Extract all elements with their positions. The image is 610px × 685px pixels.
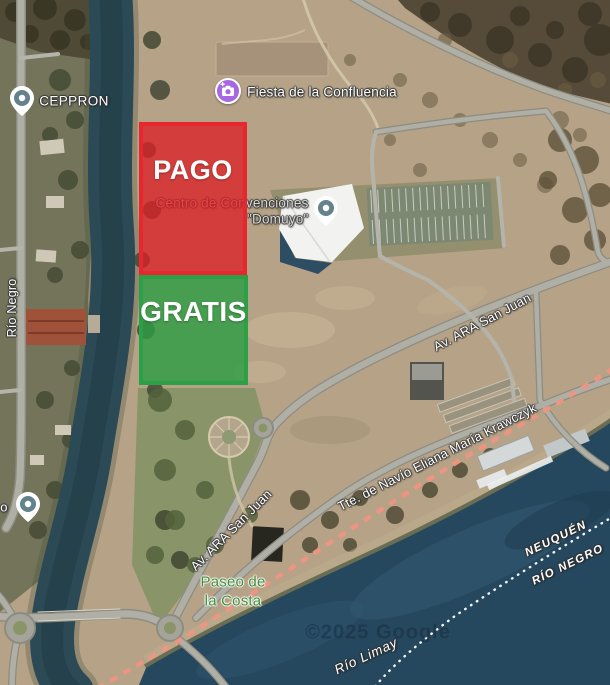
rio-negro-street-label: Río Negro	[5, 279, 19, 338]
place-pin-icon	[10, 86, 34, 116]
pago-zone-label: PAGO	[153, 155, 233, 186]
ceppron-label: CEPPRON	[39, 94, 109, 109]
pago-zone-overlay[interactable]: PAGO	[139, 122, 247, 275]
paseo-label-line1: Paseo de	[201, 573, 266, 592]
parking-lot	[367, 182, 494, 246]
park-plaza	[209, 417, 249, 457]
gratis-zone-label: GRATIS	[140, 296, 247, 328]
domuyo-pin[interactable]	[314, 196, 338, 231]
satellite-map[interactable]: ©2025 Google CEPPRON Fiesta de la Conflu…	[0, 0, 610, 685]
camera-icon	[219, 82, 237, 100]
ceppron-pin[interactable]	[10, 86, 34, 121]
gratis-zone-overlay[interactable]: GRATIS	[139, 275, 248, 385]
left-edge-pin[interactable]	[16, 492, 40, 527]
paseo-de-la-costa-label: Paseo de la Costa	[201, 573, 266, 611]
place-pin-icon	[16, 492, 40, 522]
paseo-label-line2: la Costa	[201, 592, 266, 611]
clipped-poi-label: o	[0, 500, 7, 515]
fiesta-confluencia-label: Fiesta de la Confluencia	[247, 85, 397, 100]
fiesta-photo-marker[interactable]	[215, 78, 241, 104]
place-pin-icon	[314, 196, 338, 226]
